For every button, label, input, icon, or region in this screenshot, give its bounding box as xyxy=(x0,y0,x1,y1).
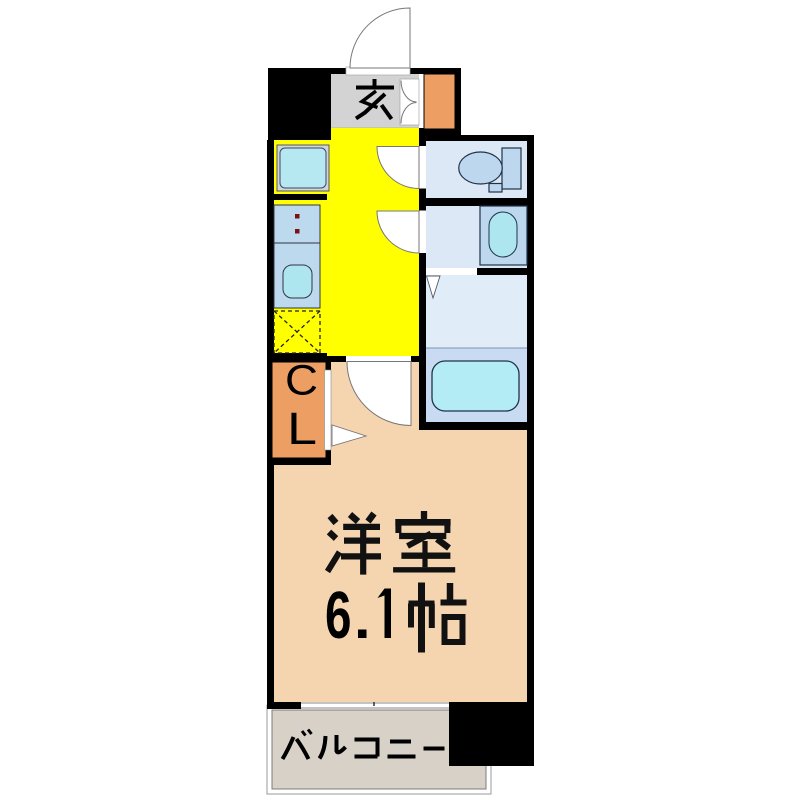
svg-text:L: L xyxy=(287,403,317,454)
svg-text:6: 6 xyxy=(325,578,352,653)
svg-text:C: C xyxy=(285,357,318,405)
